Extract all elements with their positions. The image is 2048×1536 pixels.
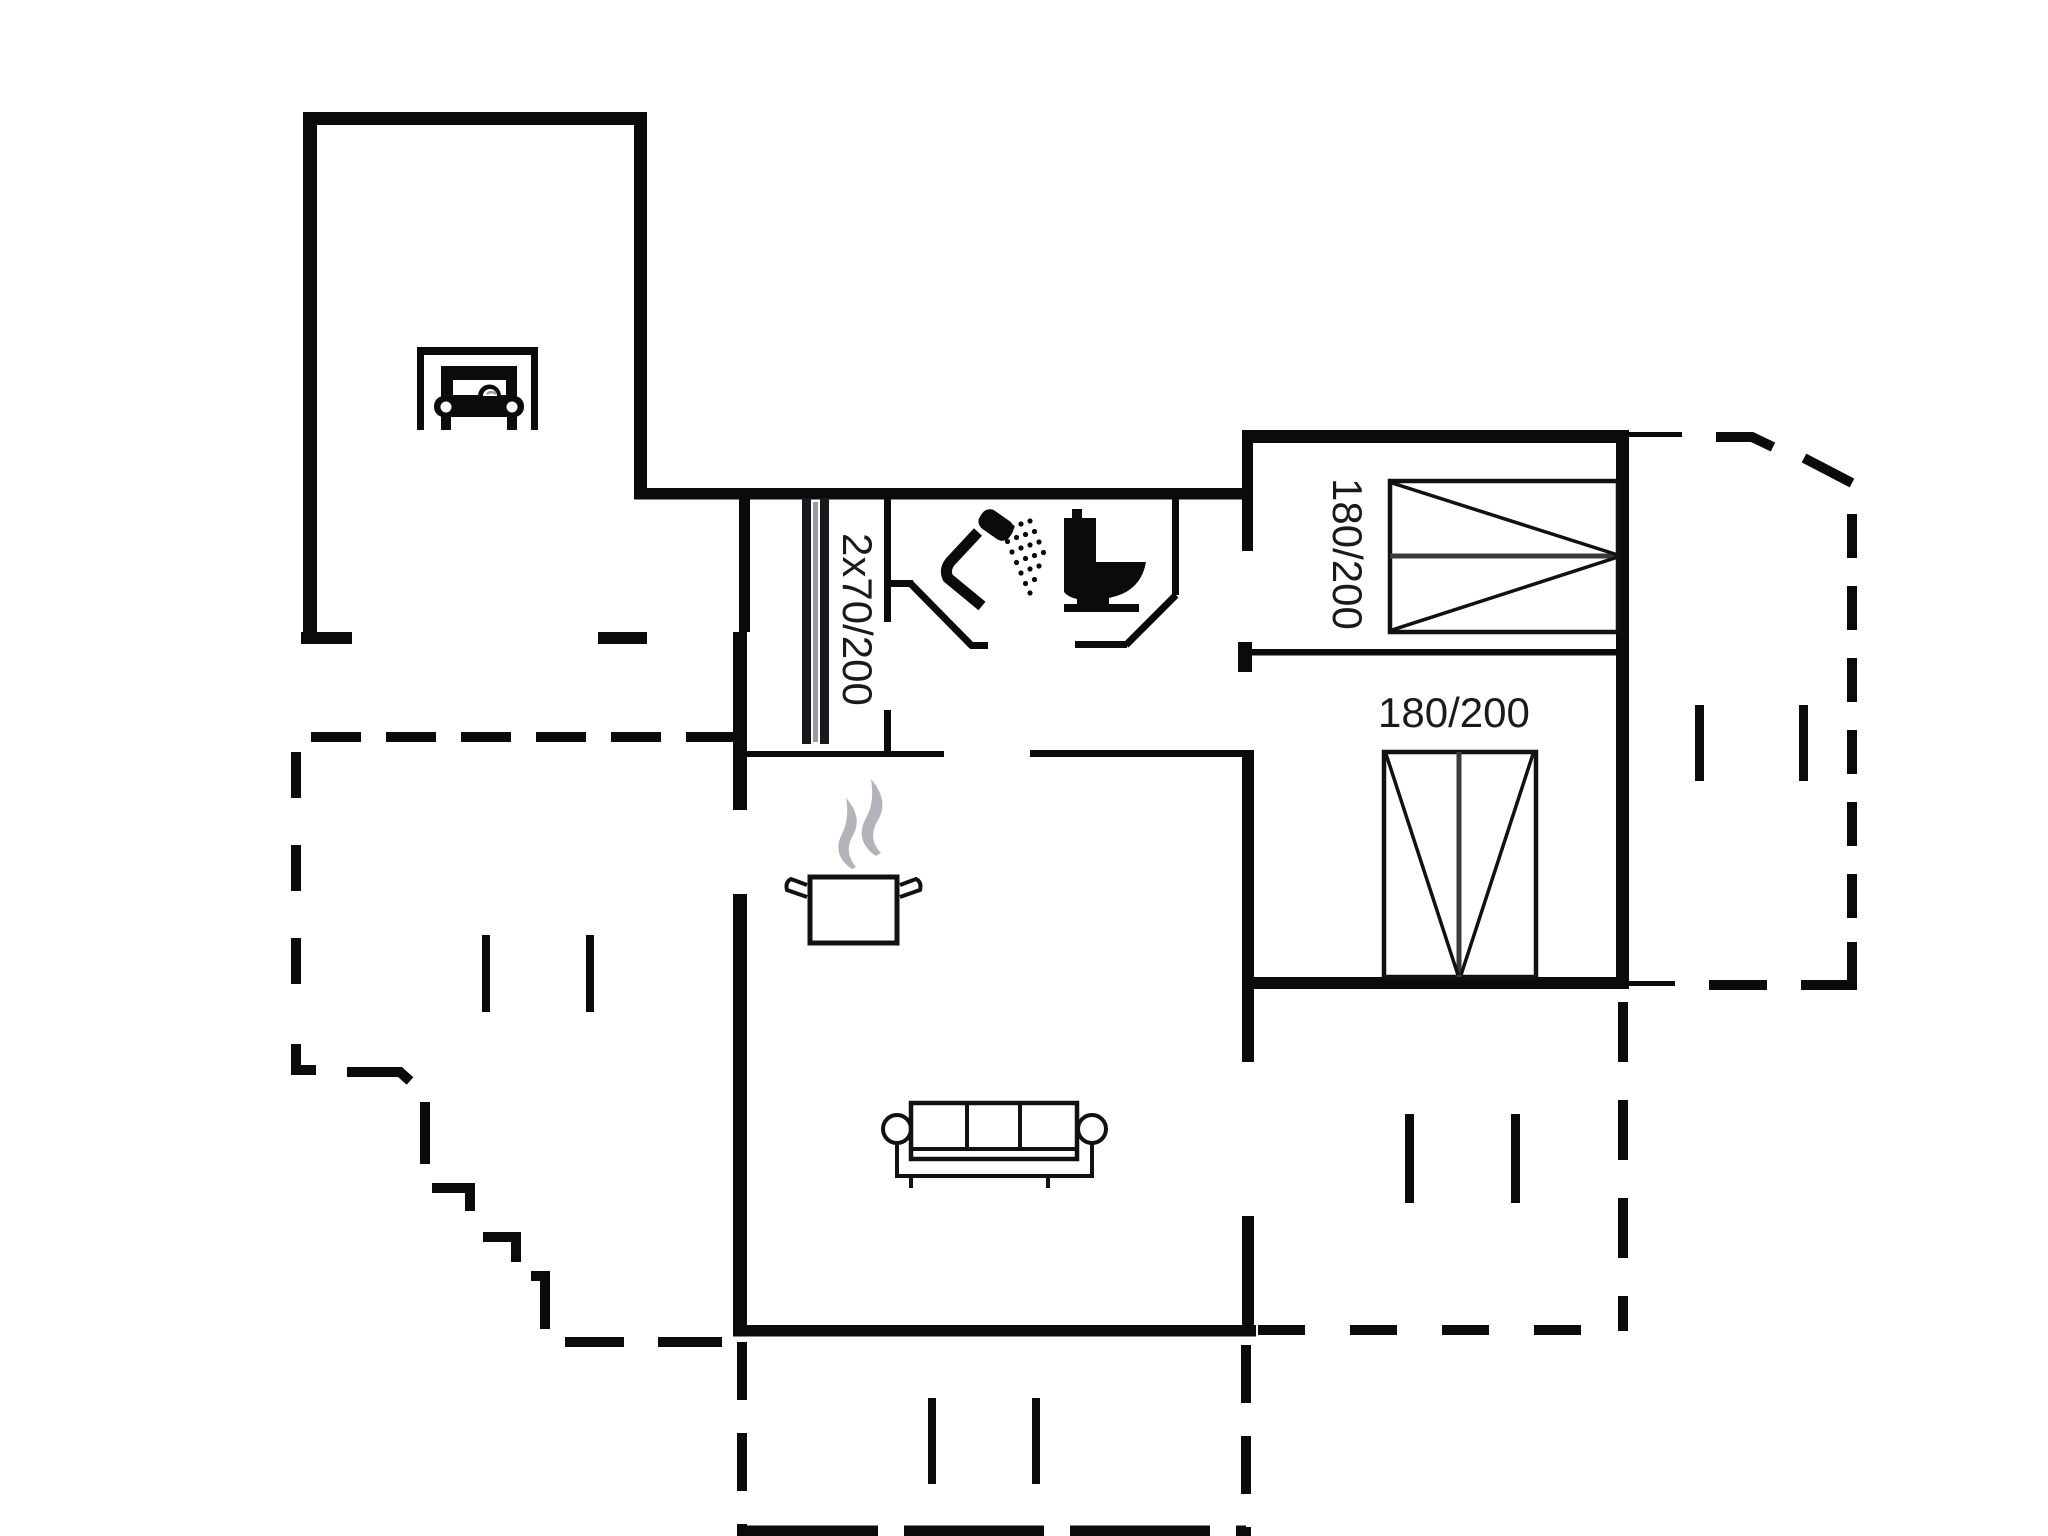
svg-text:2x70/200: 2x70/200 [834,533,881,706]
svg-text:180/200: 180/200 [1378,689,1530,736]
svg-text:180/200: 180/200 [1324,478,1371,630]
